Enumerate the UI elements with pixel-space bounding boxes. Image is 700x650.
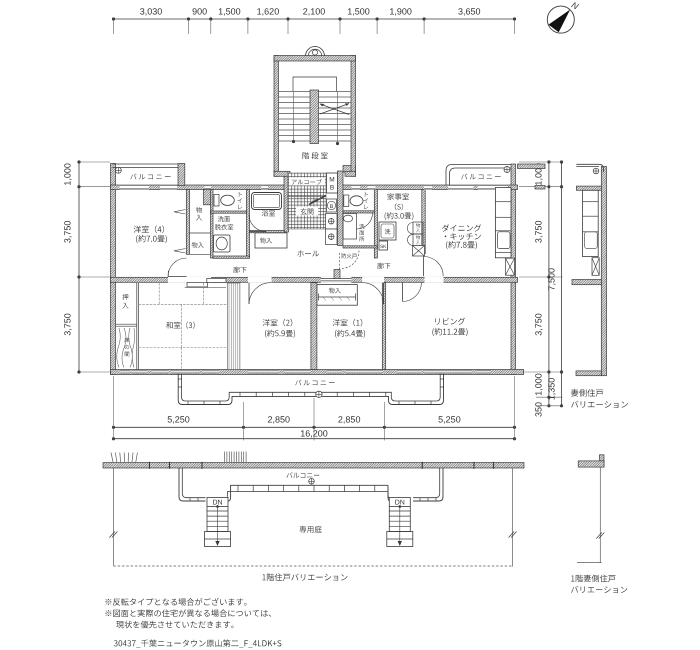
svg-text:B: B — [330, 185, 334, 192]
svg-text:2,850: 2,850 — [338, 415, 361, 425]
svg-text:B: B — [330, 204, 334, 210]
svg-text:7,500: 7,500 — [546, 268, 556, 291]
svg-text:3,030: 3,030 — [140, 6, 163, 16]
svg-text:5,250: 5,250 — [167, 415, 190, 425]
svg-text:1,000: 1,000 — [534, 373, 544, 396]
svg-text:M: M — [329, 177, 334, 184]
svg-text:3,750: 3,750 — [534, 221, 544, 244]
svg-text:1,900: 1,900 — [389, 6, 412, 16]
svg-text:3,750: 3,750 — [63, 313, 73, 336]
svg-text:SK: SK — [380, 244, 387, 250]
svg-text:3,650: 3,650 — [458, 6, 481, 16]
svg-text:1,350: 1,350 — [546, 378, 556, 401]
svg-text:350: 350 — [534, 402, 544, 417]
svg-text:2,850: 2,850 — [267, 415, 290, 425]
svg-text:3,750: 3,750 — [63, 221, 73, 244]
svg-text:2,100: 2,100 — [303, 6, 326, 16]
svg-text:1,500: 1,500 — [347, 6, 370, 16]
svg-text:1,000: 1,000 — [63, 163, 73, 186]
svg-text:1,500: 1,500 — [218, 6, 241, 16]
svg-text:3,750: 3,750 — [534, 313, 544, 336]
svg-text:5,250: 5,250 — [438, 415, 461, 425]
svg-text:1,620: 1,620 — [257, 6, 280, 16]
svg-text:900: 900 — [192, 6, 207, 16]
